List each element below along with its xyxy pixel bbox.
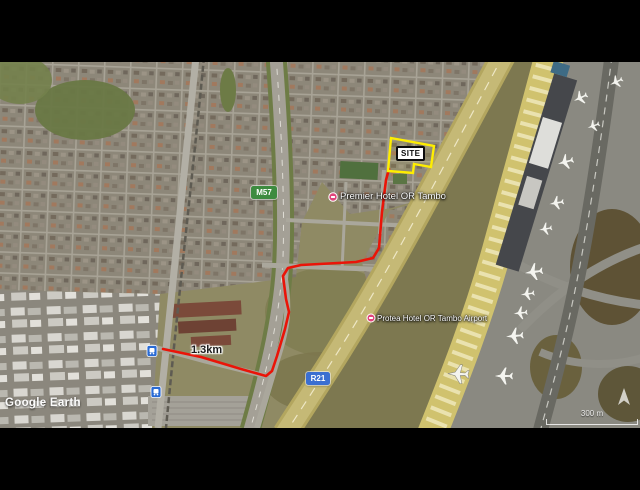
- google-earth-viewport: SITE Premier Hotel OR Tambo Protea Hotel…: [0, 0, 640, 490]
- site-label: SITE: [396, 146, 425, 161]
- road-shield-r21: R21: [306, 372, 330, 385]
- transit-station-icon[interactable]: [151, 387, 161, 398]
- scale-bar: 300 m: [546, 409, 638, 425]
- letterbox-top: [0, 0, 640, 62]
- google-earth-watermark: Google Earth: [5, 397, 81, 409]
- transit-station-icon[interactable]: [147, 346, 157, 357]
- place-label-premier-hotel[interactable]: Premier Hotel OR Tambo: [340, 191, 446, 202]
- north-arrow-icon[interactable]: [617, 388, 631, 406]
- scale-bar-label: 300 m: [581, 409, 603, 418]
- letterbox-bottom: [0, 428, 640, 490]
- place-label-protea-hotel[interactable]: Protea Hotel OR Tambo Airport: [377, 314, 487, 323]
- scale-bar-line: [546, 419, 638, 425]
- lodging-pin-icon[interactable]: [329, 193, 337, 201]
- road-shield-m57: M57: [251, 186, 277, 199]
- lodging-pin-icon[interactable]: [367, 314, 375, 322]
- route-distance-label: 1.3km: [191, 344, 222, 356]
- satellite-map[interactable]: SITE Premier Hotel OR Tambo Protea Hotel…: [0, 62, 640, 428]
